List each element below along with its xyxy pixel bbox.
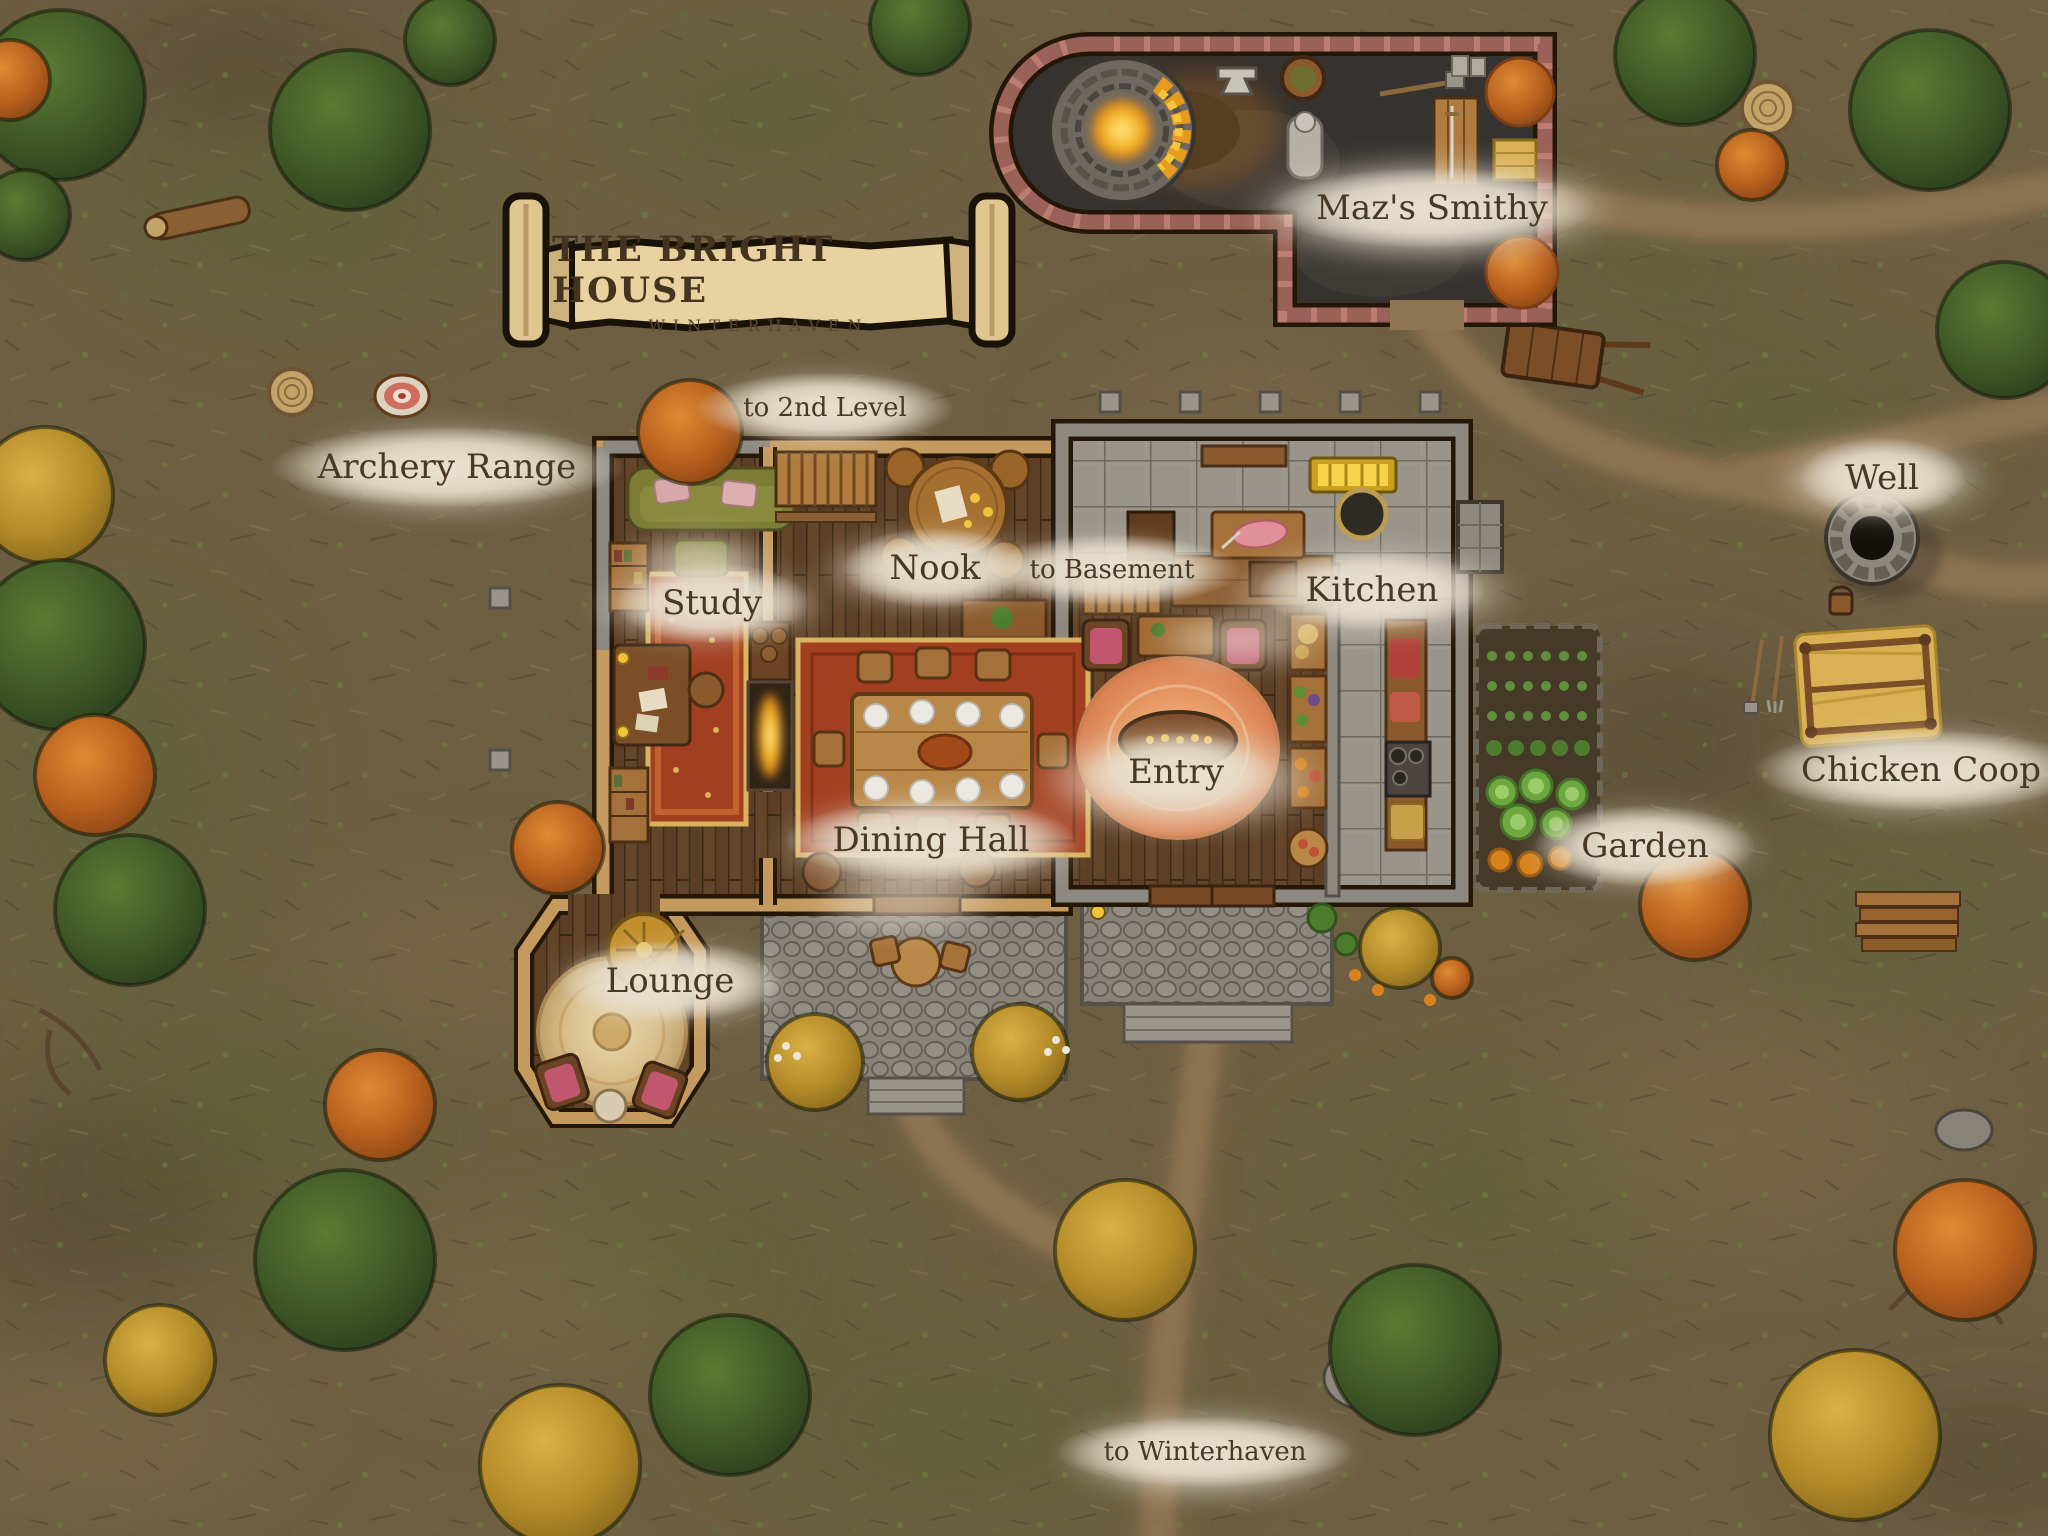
tree-green <box>255 1170 435 1350</box>
tree-green <box>1330 1265 1500 1435</box>
metal-plate <box>1471 58 1485 76</box>
kitchen-bench <box>1202 446 1286 466</box>
label-to-basement: to Basement <box>984 535 1241 605</box>
staircase-up <box>776 452 876 522</box>
battle-map: THE BRIGHT HOUSE WINTERHAVEN Maz's Smith… <box>0 0 2048 1536</box>
hay-pile <box>1486 58 1554 126</box>
patio-chair <box>870 936 901 967</box>
tree-green <box>650 1315 810 1475</box>
desk <box>614 645 690 745</box>
tree-orange <box>35 715 155 835</box>
tree-orange <box>1717 130 1787 200</box>
label-lounge: Lounge <box>560 941 781 1021</box>
tree-gold <box>1055 1180 1195 1320</box>
smithy-door-gap <box>1390 300 1464 330</box>
desk-chair <box>689 673 723 707</box>
lantern <box>1091 905 1105 919</box>
small-rock <box>1936 1110 1992 1150</box>
tree-green <box>1850 30 2010 190</box>
patio-chair <box>939 941 971 973</box>
tree-green <box>405 0 495 85</box>
golden-oven <box>1310 458 1396 492</box>
water-barrel <box>1282 57 1324 99</box>
tree-gold <box>105 1305 215 1415</box>
patio-table <box>892 938 940 986</box>
tree-stump <box>269 369 315 415</box>
fireplace <box>748 622 792 790</box>
label-to-winterhaven: to Winterhaven <box>1057 1417 1352 1487</box>
bush-gold <box>972 1004 1068 1100</box>
tree-gold <box>480 1385 640 1536</box>
roast-turkey <box>919 735 971 769</box>
tree-orange <box>512 802 604 894</box>
label-garden: Garden <box>1535 806 1754 886</box>
cauldron <box>1338 490 1386 538</box>
lounge-side-table <box>594 1090 626 1122</box>
bush-gold <box>1360 908 1440 988</box>
tree-green <box>0 560 145 730</box>
tree-orange <box>1895 1180 2035 1320</box>
tree-green <box>270 50 430 210</box>
study-room <box>610 468 794 842</box>
label-dining-hall: Dining Hall <box>786 800 1075 880</box>
label-study: Study <box>616 563 808 643</box>
tree-stump <box>1742 82 1794 134</box>
bush-orange <box>1432 958 1472 998</box>
label-smithy: Maz's Smithy <box>1270 168 1594 248</box>
tree-green <box>0 170 70 260</box>
tree-orange <box>325 1050 435 1160</box>
tree-green <box>1615 0 1755 125</box>
label-kitchen: Kitchen <box>1260 550 1485 630</box>
label-archery-range: Archery Range <box>272 427 623 507</box>
dining-table <box>852 694 1032 808</box>
pink-armchair <box>1083 620 1129 670</box>
tree-gold <box>1770 1350 1940 1520</box>
bookshelf <box>610 768 648 842</box>
metal-plate <box>1452 56 1468 76</box>
map-artwork <box>0 0 2048 1536</box>
label-to-2nd-level: to 2nd Level <box>697 373 953 443</box>
tree-gold <box>0 427 113 563</box>
plank-stack <box>1856 892 1960 951</box>
map-subtitle: WINTERHAVEN <box>648 316 869 335</box>
kitchen-counter <box>1386 620 1430 850</box>
butcher-table <box>1212 512 1304 558</box>
bush-gold <box>767 1014 863 1110</box>
label-entry: Entry <box>1082 732 1270 812</box>
archery-target <box>375 375 429 417</box>
label-well: Well <box>1799 438 1965 518</box>
map-title: THE BRIGHT HOUSE <box>552 229 966 311</box>
title-banner: THE BRIGHT HOUSE WINTERHAVEN <box>552 236 966 328</box>
tree-green <box>55 835 205 985</box>
